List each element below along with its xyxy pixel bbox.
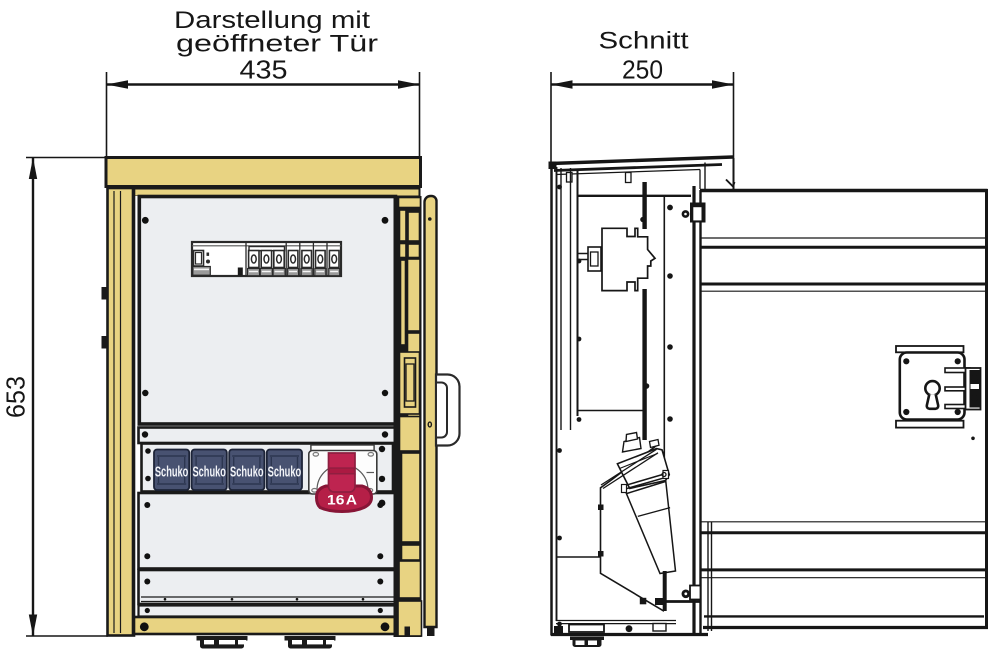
- svg-text:16 A: 16 A: [327, 492, 357, 508]
- svg-text:Schuko: Schuko: [155, 465, 189, 481]
- svg-text:435: 435: [240, 55, 288, 85]
- svg-text:Schuko: Schuko: [192, 465, 226, 481]
- svg-text:geöffneter Tür: geöffneter Tür: [176, 31, 378, 58]
- svg-text:Schuko: Schuko: [268, 465, 302, 481]
- svg-text:653: 653: [1, 376, 31, 418]
- svg-text:250: 250: [622, 55, 663, 85]
- svg-text:Schuko: Schuko: [230, 465, 264, 481]
- svg-text:Schnitt: Schnitt: [599, 28, 689, 55]
